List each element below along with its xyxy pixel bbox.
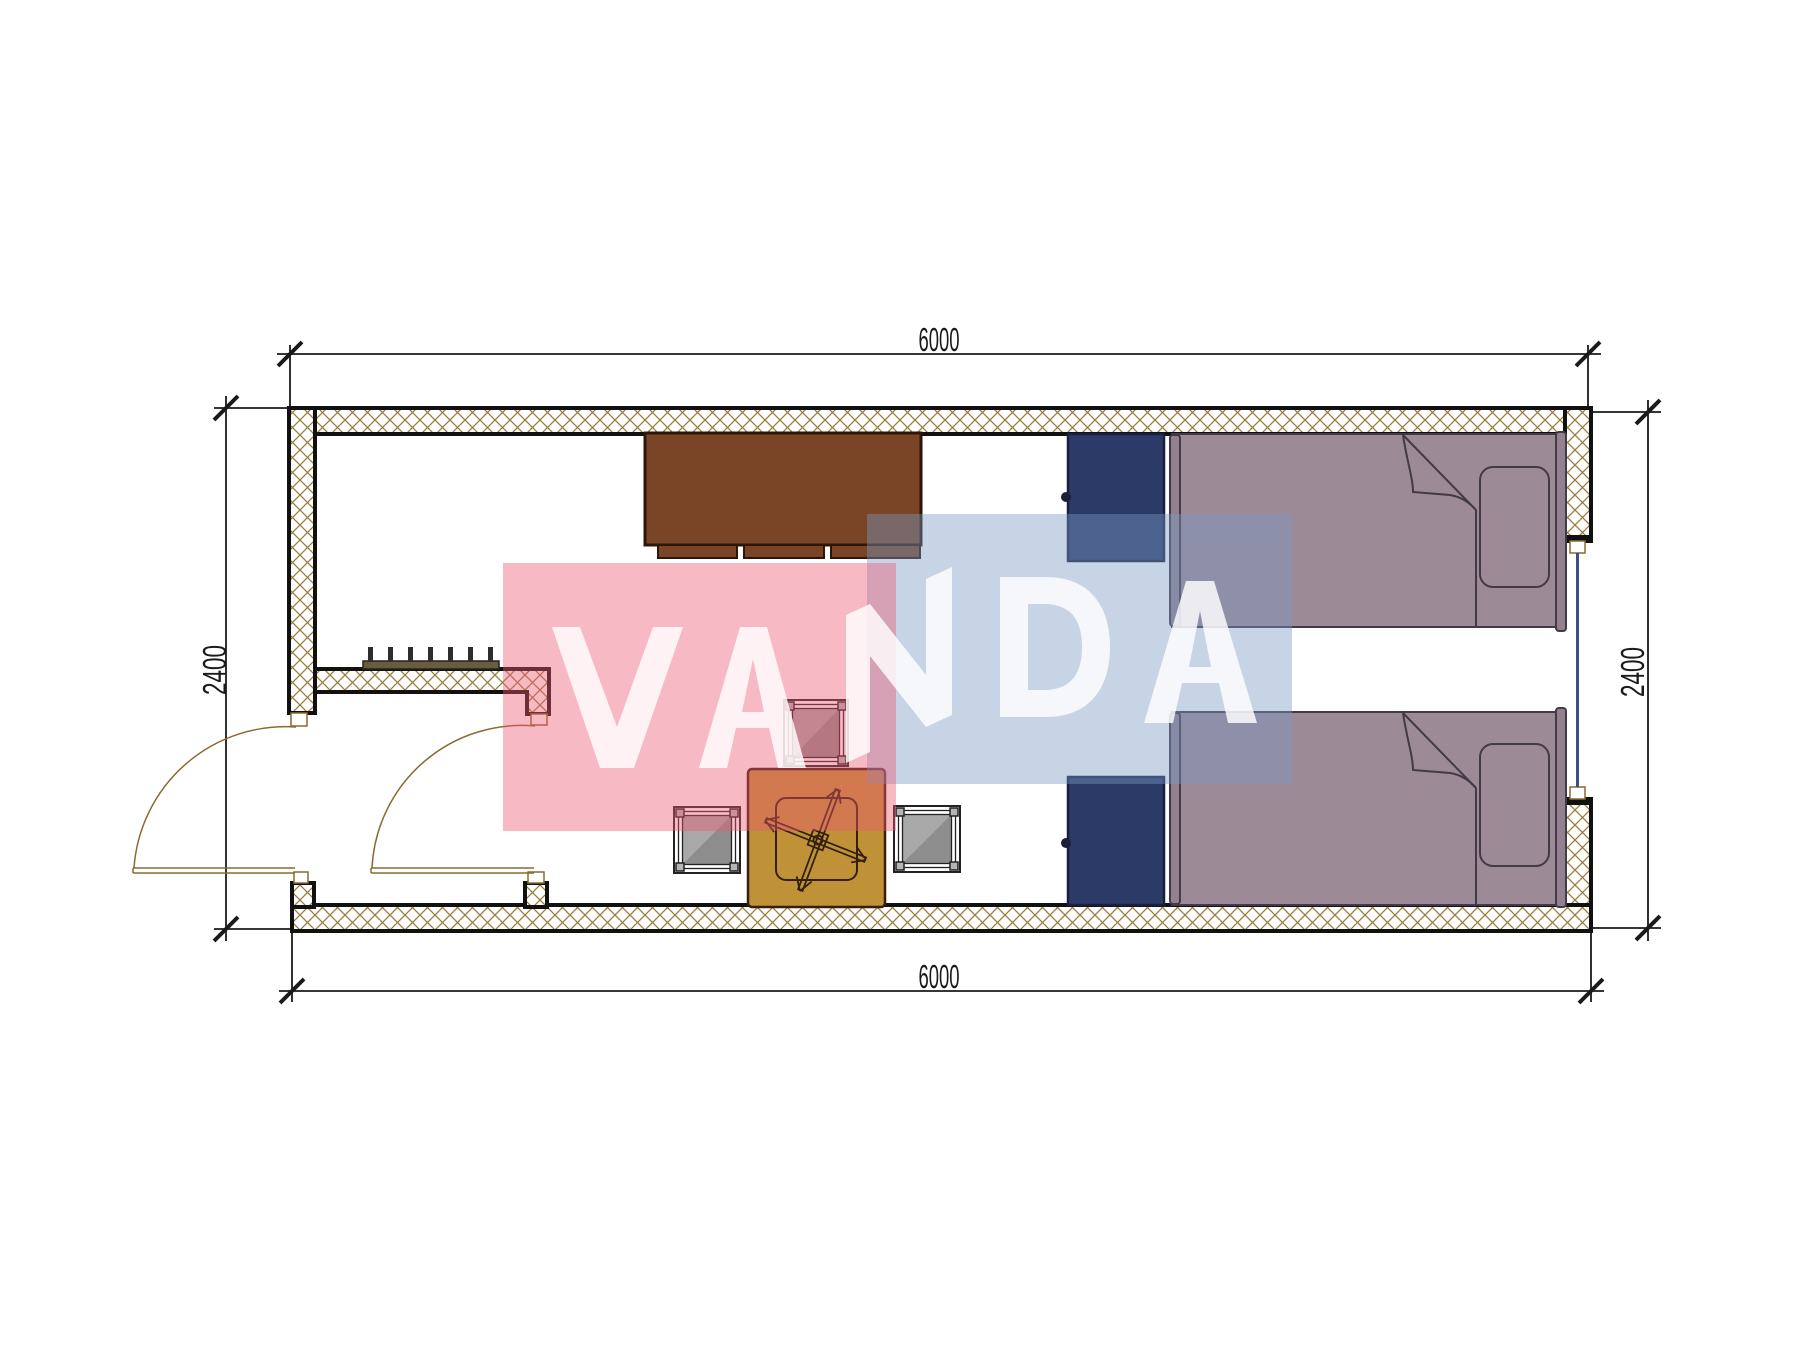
svg-text:2400: 2400 <box>1614 647 1651 697</box>
svg-text:6000: 6000 <box>919 958 960 995</box>
svg-text:6000: 6000 <box>919 321 960 358</box>
svg-text:2400: 2400 <box>196 645 233 695</box>
